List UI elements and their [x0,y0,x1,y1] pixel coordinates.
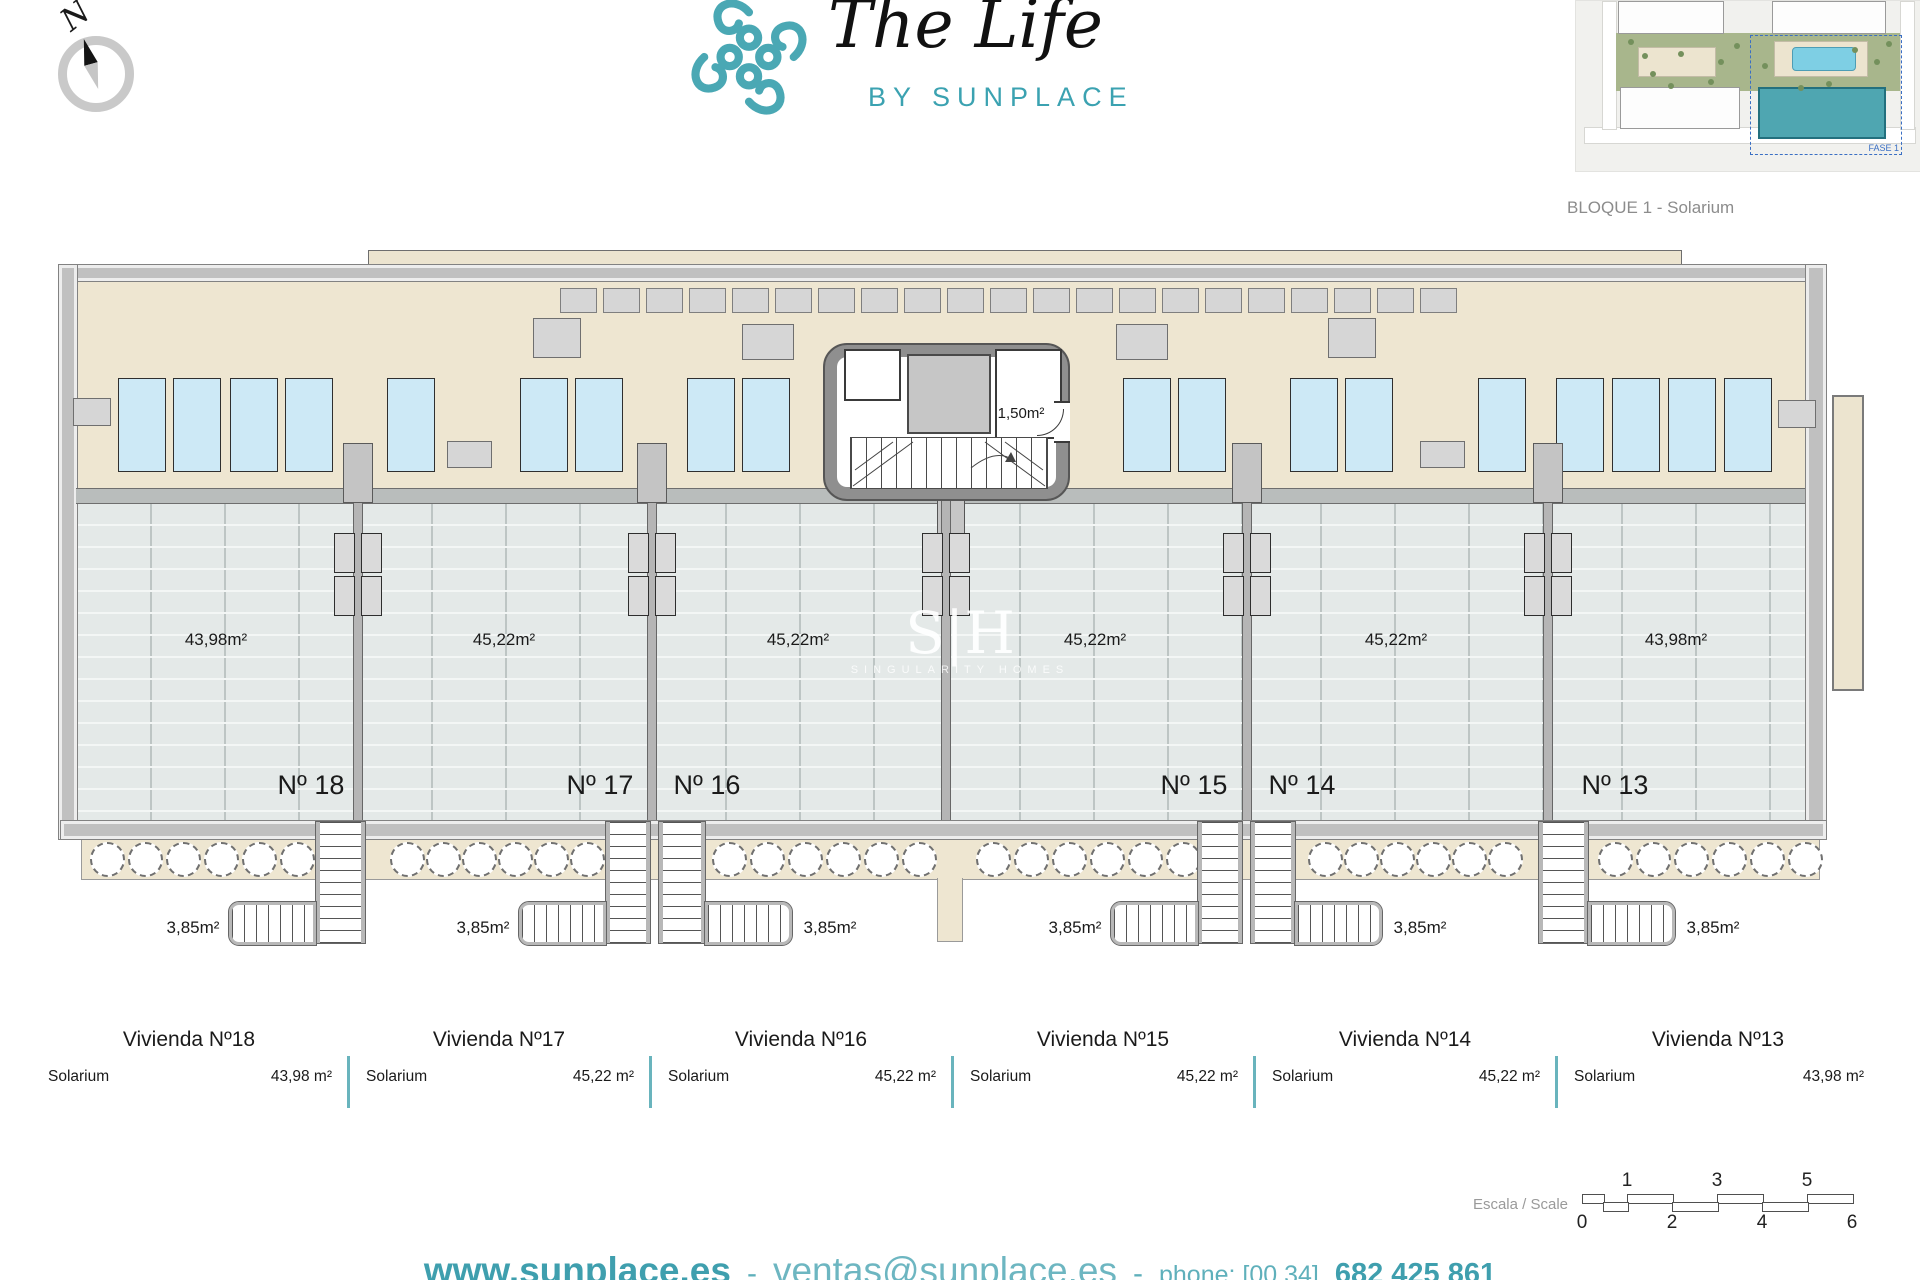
planter-circle [1712,842,1747,877]
lounger [947,288,984,313]
stair-shaft [1251,822,1295,943]
scale-tick: 5 [1792,1170,1822,1192]
scale-tick: 1 [1612,1170,1642,1192]
unit-number-label: Nº 15 [1139,770,1249,801]
lounger [1162,288,1199,313]
planter-circle [1128,842,1163,877]
lounger [861,288,898,313]
watermark-name: SINGULARITY HOMES [850,664,1070,676]
ac-unit [628,576,649,616]
ac-unit [949,533,970,573]
table-divider [1555,1056,1558,1108]
phone-prefix: phone: [00 34] [1159,1261,1319,1280]
brand-logo-knot-icon [688,0,810,118]
stair-area-label: 3,85m² [1365,918,1475,938]
tree-dot [1762,63,1768,69]
table-title: Vivienda Nº18 [30,1028,348,1052]
stair-area-label: 3,85m² [775,918,885,938]
sunbed [1556,378,1604,472]
planter-circle [976,842,1011,877]
table-column: Vivienda Nº18 Solarium 43,98 m² [30,1028,348,1112]
planter-circle [1416,842,1451,877]
planter [73,398,111,426]
table-title: Vivienda Nº14 [1254,1028,1556,1052]
ac-unit [1223,576,1244,616]
ac-unit [1250,533,1271,573]
tree-dot [1798,85,1804,91]
lounger [646,288,683,313]
stair-core: 1,50m² [823,343,1070,501]
terrace-area-label: 45,22m² [444,630,564,650]
table-row-label: Solarium [668,1068,729,1086]
planter-circle [1014,842,1049,877]
unit-number-label: Nº 14 [1247,770,1357,801]
planter-circle [534,842,569,877]
planter-circle [1052,842,1087,877]
sunbed [1345,378,1393,472]
tree-dot [1718,59,1724,65]
stair-shaft [1198,822,1242,943]
planter-circle [1344,842,1379,877]
floor-plan-page: N [0,0,1920,1280]
sunbed [742,378,790,472]
lounger [990,288,1027,313]
planter-circle [166,842,201,877]
sunbed [1724,378,1772,472]
sunbed [285,378,333,472]
sunbed [118,378,166,472]
planter-circle [1488,842,1523,877]
scale-segment [1627,1194,1674,1204]
stair-shaft [1539,822,1588,943]
stair-direction-marks-icon [851,438,1047,488]
ac-unit [361,576,382,616]
planter [1778,400,1816,428]
scale-segment [1717,1194,1764,1204]
planter-circle [1166,842,1201,877]
planter [1420,441,1465,468]
table-row-value: 45,22 m² [875,1068,936,1086]
table-divider [347,1056,350,1108]
planter-circle [90,842,125,877]
outer-wall-left [58,264,78,840]
planter-circle [280,842,315,877]
tree-dot [1708,79,1714,85]
tree-dot [1668,83,1674,89]
table-row-label: Solarium [1272,1068,1333,1086]
stair-shaft [659,822,705,943]
outer-wall-top [60,264,1827,282]
tree-dot [1628,39,1634,45]
planter [1328,318,1376,358]
table-row-value: 43,98 m² [271,1068,332,1086]
brand-subtitle: BY SUNPLACE [868,82,1134,113]
tree-dot [1678,51,1684,57]
planter-circle [498,842,533,877]
scale-label: Escala / Scale [1430,1196,1568,1213]
planter-circle [750,842,785,877]
terrace-area-label: 45,22m² [738,630,858,650]
site-building [1620,87,1740,129]
scale-segment [1762,1202,1809,1212]
outer-wall-right [1805,264,1827,840]
scale-bar-graphic: 1 3 5 0 2 4 6 [1582,1170,1862,1234]
footer-contacts: www.sunplace.es - ventas@sunplace.es - p… [0,1250,1920,1280]
site-map-inset: FASE 1 [1575,0,1920,172]
planter [447,441,492,468]
site-road [1900,1,1915,130]
tree-dot [1874,59,1880,65]
stair-area-label: 3,85m² [1658,918,1768,938]
unit-number-label: Nº 13 [1560,770,1670,801]
planter-circle [902,842,937,877]
planter-circle [864,842,899,877]
right-wing-extension [1832,395,1864,691]
table-column: Vivienda Nº15 Solarium 45,22 m² [952,1028,1254,1112]
email-link[interactable]: ventas@sunplace.es [773,1250,1117,1280]
elevator [907,354,991,434]
table-title: Vivienda Nº16 [650,1028,952,1052]
lounger [904,288,941,313]
planter-circle [1598,842,1633,877]
table-row-value: 45,22 m² [573,1068,634,1086]
sunbed [1668,378,1716,472]
planter-circle [1380,842,1415,877]
lounger [689,288,726,313]
table-title: Vivienda Nº17 [348,1028,650,1052]
lounger [603,288,640,313]
lounger [818,288,855,313]
terrace-area-label: 43,98m² [1616,630,1736,650]
tree-dot [1826,81,1832,87]
planter [533,318,581,358]
lounger [1119,288,1156,313]
divider-cap [1533,443,1563,503]
scale-tick: 2 [1657,1212,1687,1234]
site-building [1618,1,1724,34]
footer-separator: - [1133,1257,1143,1280]
planter-circle [1750,842,1785,877]
core-stairs [850,437,1048,489]
table-row-label: Solarium [970,1068,1031,1086]
planter-circle [242,842,277,877]
stair-area-label: 3,85m² [1020,918,1130,938]
table-divider [1253,1056,1256,1108]
sunbed [575,378,623,472]
stair-shaft [606,822,650,943]
unit-number-label: Nº 17 [545,770,655,801]
table-row-value: 45,22 m² [1479,1068,1540,1086]
table-row-value: 43,98 m² [1803,1068,1864,1086]
stair-area-label: 3,85m² [428,918,538,938]
sunbed [1123,378,1171,472]
core-area-label: 1,50m² [975,405,1067,422]
divider-cap [637,443,667,503]
website-link[interactable]: www.sunplace.es [424,1250,731,1280]
scale-tick: 6 [1837,1212,1867,1234]
site-fase-outline: FASE 1 [1750,35,1902,155]
sunbed [230,378,278,472]
scale-segment [1582,1194,1605,1204]
tree-dot [1650,71,1656,77]
planter [742,324,794,360]
ac-unit [334,533,355,573]
lounger [1248,288,1285,313]
terrace-area-label: 45,22m² [1035,630,1155,650]
lounger [1076,288,1113,313]
planter-circle [204,842,239,877]
table-row-value: 45,22 m² [1177,1068,1238,1086]
ac-unit [334,576,355,616]
sunbed [387,378,435,472]
planter-circle [826,842,861,877]
ac-unit [1250,576,1271,616]
scale-tick: 3 [1702,1170,1732,1192]
brand-title: The Life [828,0,1103,63]
phone-number: 682 425 861 [1335,1258,1496,1280]
scale-segment [1807,1194,1854,1204]
compass: N [50,0,150,120]
ac-unit [655,533,676,573]
lounger [775,288,812,313]
planter [1116,324,1168,360]
brand-header: The Life BY SUNPLACE [680,0,1180,125]
planter-circle [426,842,461,877]
planter-circle [1452,842,1487,877]
planter-circle [570,842,605,877]
scale-segment [1603,1202,1629,1212]
planter-circle [1636,842,1671,877]
table-divider [951,1056,954,1108]
tree-dot [1886,41,1892,47]
site-fase-label: FASE 1 [1868,143,1899,153]
site-road [1602,1,1617,130]
ac-unit [1524,533,1545,573]
planter-circle [1674,842,1709,877]
lounger [1205,288,1242,313]
sunbed [1290,378,1338,472]
lounger [1377,288,1414,313]
sunbed [687,378,735,472]
ac-unit [1524,576,1545,616]
footer-separator: - [747,1257,757,1280]
planter-circle [712,842,747,877]
divider-cap [1232,443,1262,503]
compass-north-label: N [54,0,98,39]
ac-unit [628,533,649,573]
ac-unit [922,533,943,573]
tree-dot [1852,47,1858,53]
planter-circle [128,842,163,877]
table-column: Vivienda Nº13 Solarium 43,98 m² [1556,1028,1880,1112]
table-title: Vivienda Nº13 [1556,1028,1880,1052]
sunbed [1612,378,1660,472]
ac-unit [1551,576,1572,616]
sunbed [1478,378,1526,472]
planter-circle [1090,842,1125,877]
terrace-area-label: 45,22m² [1336,630,1456,650]
sunbed [520,378,568,472]
lounger [1291,288,1328,313]
lounger [1033,288,1070,313]
scale-segment [1672,1202,1719,1212]
stair-area-label: 3,85m² [138,918,248,938]
table-divider [649,1056,652,1108]
scale-tick: 0 [1567,1212,1597,1234]
sunbed [1178,378,1226,472]
site-building [1772,1,1886,34]
planter-circle [1308,842,1343,877]
table-title: Vivienda Nº15 [952,1028,1254,1052]
lounger [1420,288,1457,313]
lounger [560,288,597,313]
lounger [1334,288,1371,313]
unit-number-label: Nº 16 [652,770,762,801]
ac-unit [655,576,676,616]
unit-number-label: Nº 18 [256,770,366,801]
planter-circle [390,842,425,877]
table-row-label: Solarium [48,1068,109,1086]
tree-dot [1734,43,1740,49]
scale-bar: Escala / Scale 1 3 5 0 2 4 6 [1430,1170,1910,1240]
planter-circle [462,842,497,877]
scale-tick: 4 [1747,1212,1777,1234]
walkway-center-stub [937,878,963,942]
table-column: Vivienda Nº16 Solarium 45,22 m² [650,1028,952,1112]
table-column: Vivienda Nº17 Solarium 45,22 m² [348,1028,650,1112]
core-room [844,349,901,401]
tree-dot [1642,53,1648,59]
planter-circle [1788,842,1823,877]
ac-unit [1223,533,1244,573]
table-row-label: Solarium [366,1068,427,1086]
ac-unit [1551,533,1572,573]
table-row-label: Solarium [1574,1068,1635,1086]
stair-shaft [316,822,365,943]
terrace-area-label: 43,98m² [156,630,276,650]
planter-circle [788,842,823,877]
block-caption: BLOQUE 1 - Solarium [1567,198,1734,218]
sunbed [173,378,221,472]
ac-unit [361,533,382,573]
table-column: Vivienda Nº14 Solarium 45,22 m² [1254,1028,1556,1112]
divider-cap [343,443,373,503]
lounger [732,288,769,313]
